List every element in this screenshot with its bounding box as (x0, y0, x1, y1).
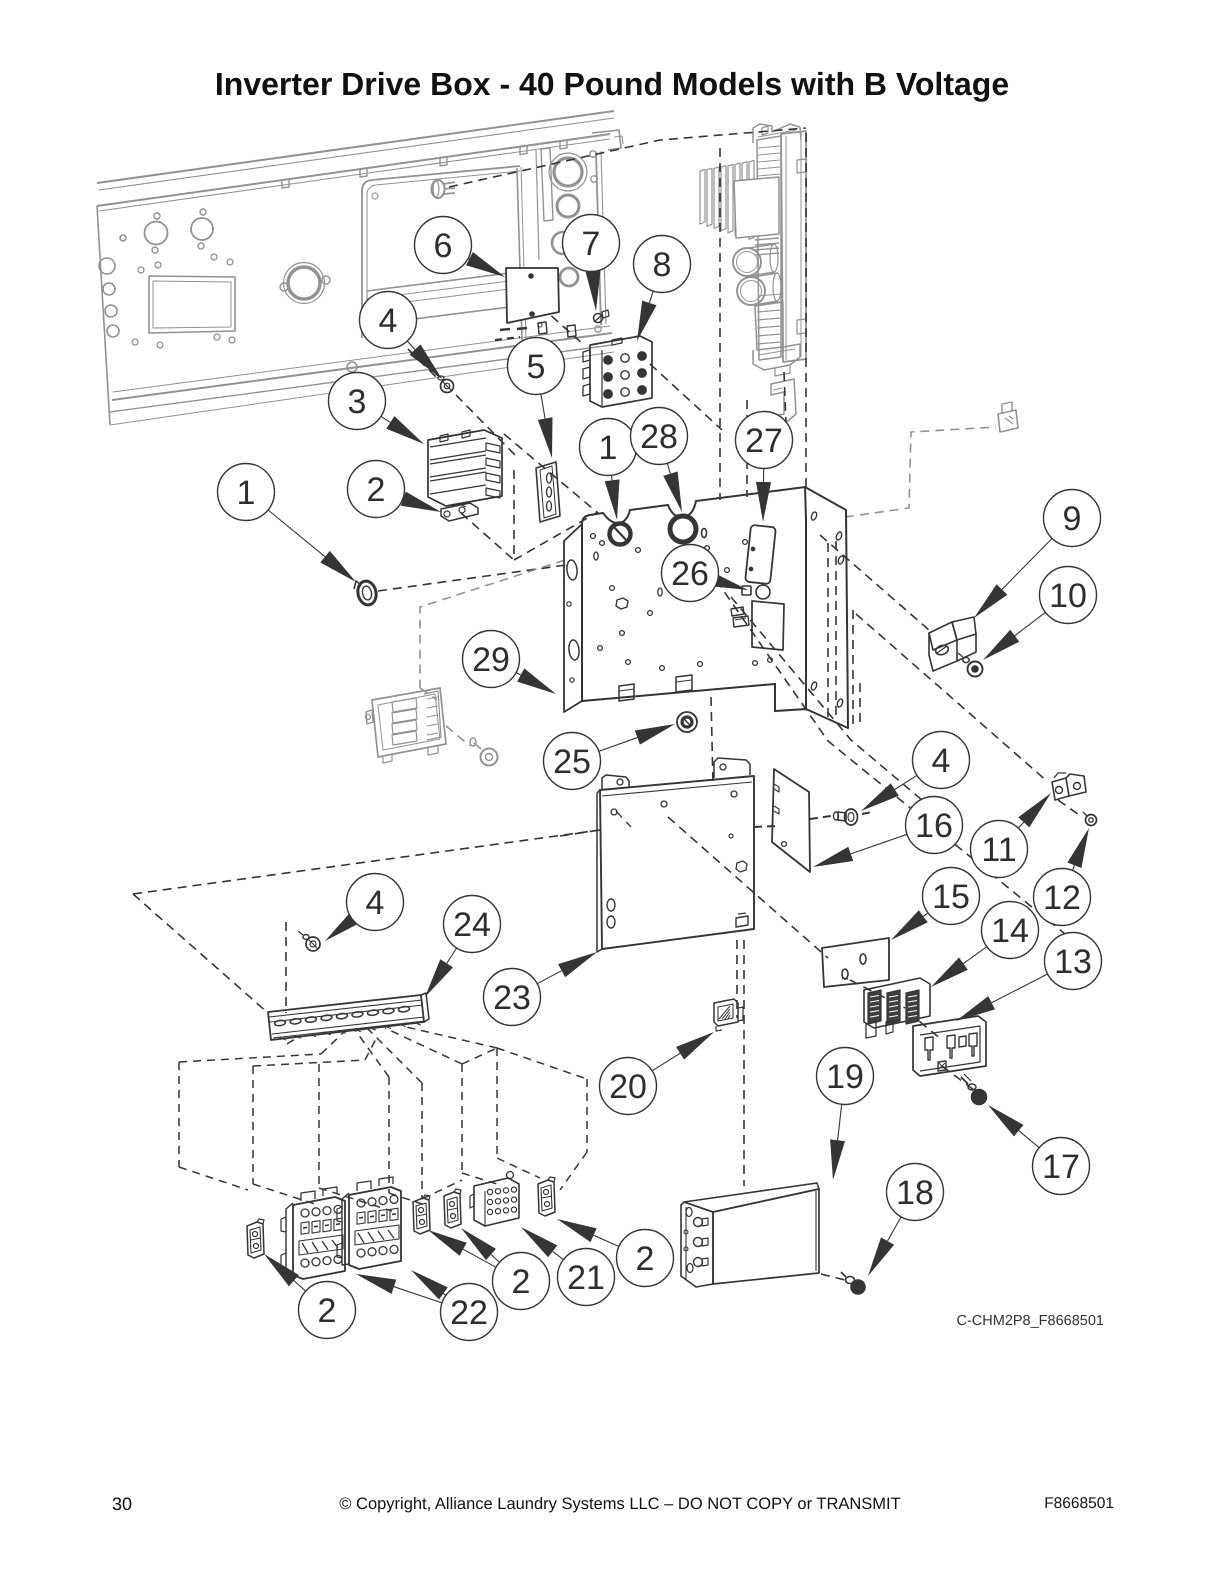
svg-text:11: 11 (981, 831, 1016, 869)
svg-text:15: 15 (932, 878, 970, 916)
svg-text:2: 2 (636, 1240, 655, 1278)
svg-text:9: 9 (1063, 500, 1082, 538)
svg-text:7: 7 (582, 225, 601, 263)
svg-text:4: 4 (366, 884, 385, 922)
svg-text:21: 21 (567, 1259, 605, 1297)
svg-text:19: 19 (826, 1058, 864, 1096)
svg-text:14: 14 (991, 912, 1029, 950)
svg-text:24: 24 (453, 906, 491, 944)
svg-text:3: 3 (348, 383, 367, 421)
svg-text:27: 27 (745, 422, 783, 460)
svg-text:4: 4 (932, 742, 951, 780)
svg-text:Inverter Drive Box - 40 Pound: Inverter Drive Box - 40 Pound Models wit… (215, 66, 1009, 102)
svg-text:C-CHM2P8_F8668501: C-CHM2P8_F8668501 (957, 1313, 1105, 1329)
svg-text:17: 17 (1042, 1148, 1080, 1186)
svg-text:2: 2 (318, 1292, 337, 1330)
svg-text:16: 16 (915, 807, 953, 845)
svg-text:1: 1 (599, 429, 618, 467)
svg-text:22: 22 (450, 1294, 488, 1332)
svg-text:18: 18 (896, 1174, 934, 1212)
svg-text:4: 4 (379, 302, 398, 340)
svg-text:8: 8 (653, 246, 672, 284)
svg-text:25: 25 (553, 743, 591, 781)
svg-text:12: 12 (1043, 879, 1081, 917)
svg-text:1: 1 (237, 474, 256, 512)
svg-text:20: 20 (609, 1068, 647, 1106)
svg-text:30: 30 (112, 1494, 132, 1514)
svg-text:10: 10 (1049, 577, 1087, 615)
svg-text:5: 5 (527, 348, 546, 386)
svg-text:29: 29 (472, 641, 510, 679)
svg-text:F8668501: F8668501 (1044, 1495, 1114, 1512)
svg-text:23: 23 (493, 979, 531, 1017)
svg-text:26: 26 (671, 555, 709, 593)
svg-text:6: 6 (434, 227, 453, 265)
svg-text:2: 2 (512, 1263, 531, 1301)
svg-text:2: 2 (367, 471, 386, 509)
svg-text:13: 13 (1054, 943, 1092, 981)
svg-text:© Copyright, Alliance Laundry: © Copyright, Alliance Laundry Systems LL… (339, 1495, 900, 1513)
svg-text:28: 28 (640, 418, 678, 456)
